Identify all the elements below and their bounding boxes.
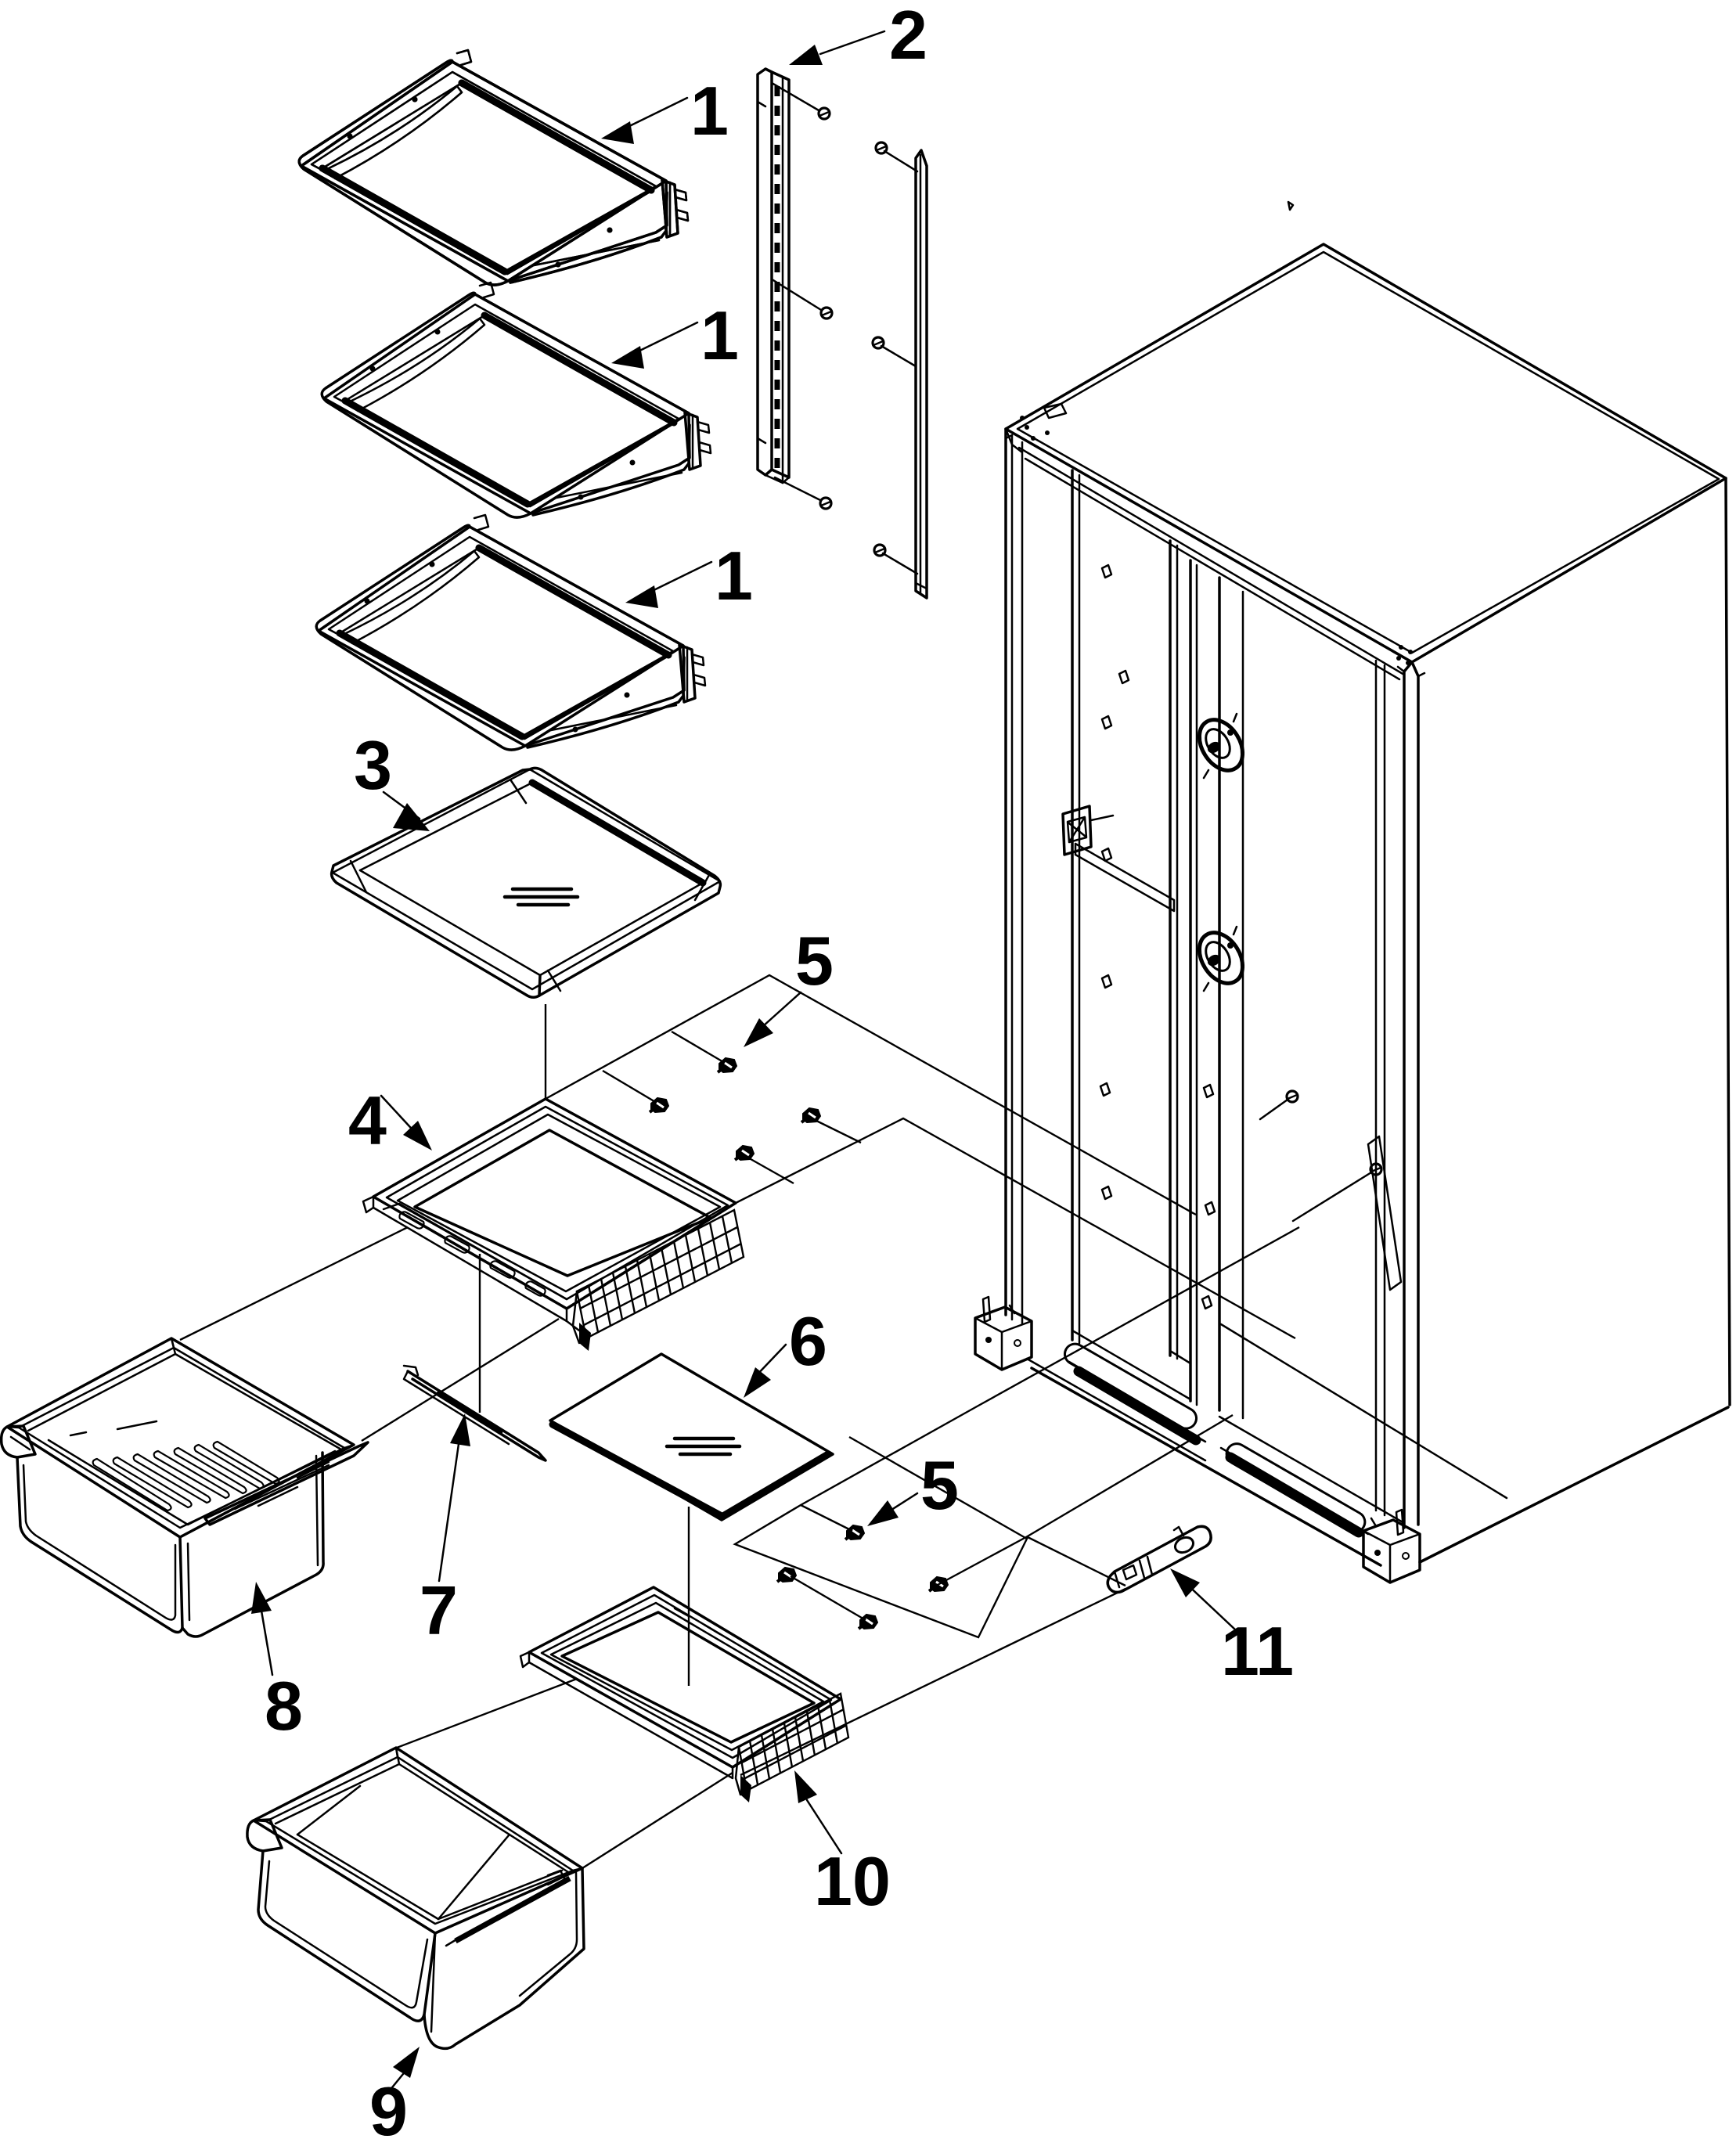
svg-text:7: 7 [420, 1572, 458, 1649]
svg-text:2: 2 [889, 0, 927, 74]
svg-text:5: 5 [920, 1446, 959, 1524]
svg-text:9: 9 [369, 2072, 408, 2139]
svg-text:11: 11 [1221, 1612, 1294, 1690]
svg-text:5: 5 [795, 922, 834, 999]
svg-text:8: 8 [265, 1667, 303, 1745]
svg-text:4: 4 [348, 1082, 387, 1159]
svg-text:1: 1 [715, 537, 753, 614]
svg-text:1: 1 [690, 72, 729, 149]
svg-text:6: 6 [789, 1302, 827, 1380]
svg-text:1: 1 [701, 297, 739, 374]
svg-text:10: 10 [814, 1842, 891, 1920]
svg-text:3: 3 [354, 726, 392, 804]
